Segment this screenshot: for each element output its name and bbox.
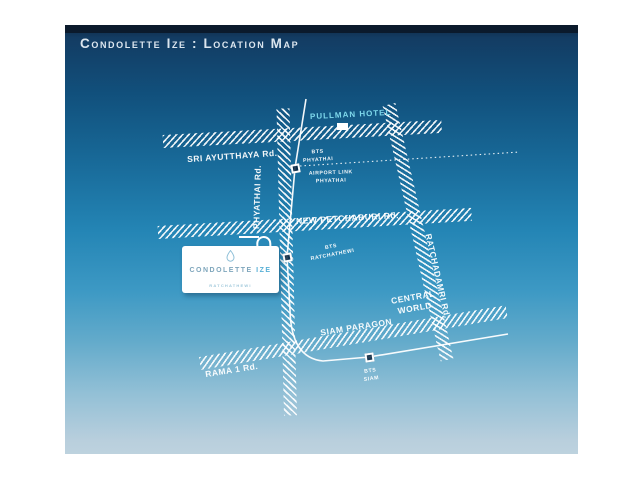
project-name-accent: IZE bbox=[256, 267, 271, 274]
station-marker-bts-siam bbox=[364, 352, 374, 362]
label-bts-phyathai: BTS PHYATHAI bbox=[299, 148, 336, 166]
project-card: CONDOLETTE IZE RATCHATHEWI bbox=[182, 246, 279, 293]
drop-logo-icon bbox=[226, 250, 235, 262]
project-subtitle: RATCHATHEWI bbox=[182, 283, 279, 288]
pullman-hotel-marker bbox=[337, 123, 348, 130]
project-name-primary: CONDOLETTE bbox=[189, 267, 252, 274]
location-pointer-line bbox=[239, 236, 259, 239]
project-name: CONDOLETTE IZE bbox=[182, 267, 279, 274]
location-map: Condolette Ize : Location Map SRI AYUTTH… bbox=[65, 25, 578, 454]
label-phyathai-road: PHYATHAI Rd. bbox=[251, 165, 263, 229]
station-marker-bts-ratchathewi bbox=[282, 252, 292, 262]
transit-lines-layer bbox=[65, 25, 578, 454]
station-marker-bts-phyathai bbox=[290, 163, 300, 173]
bts-line bbox=[287, 99, 508, 361]
label-airport-link-phyathai: AIRPORT LINK PHYATHAI bbox=[306, 169, 357, 186]
